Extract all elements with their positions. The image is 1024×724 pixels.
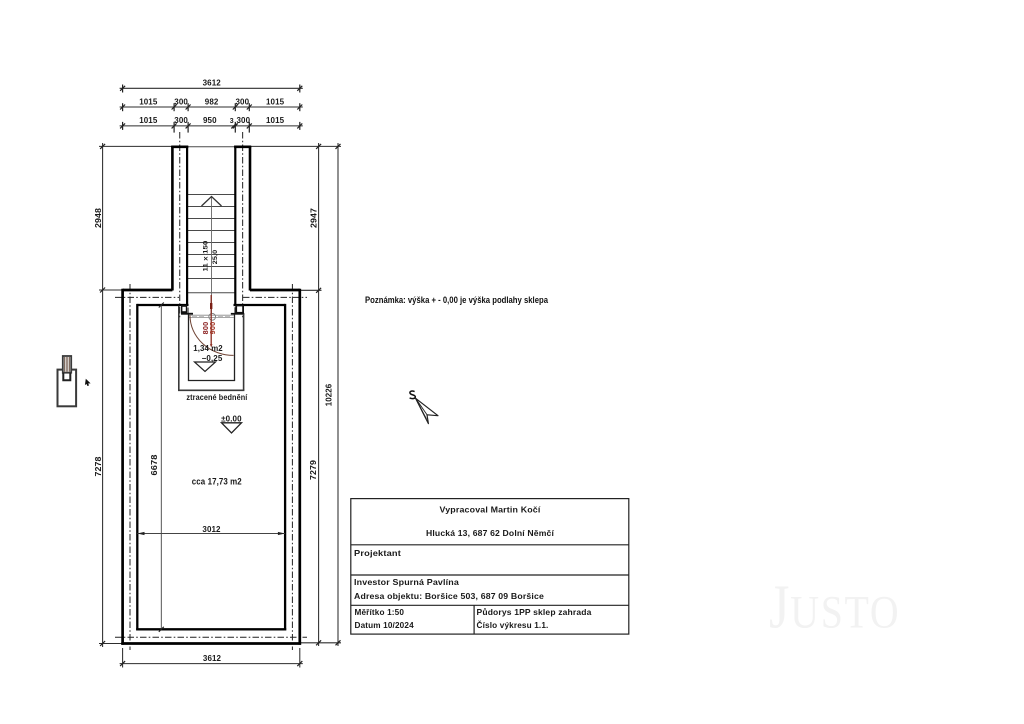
svg-text:Hlucká 13, 687 62 Dolní Němčí: Hlucká 13, 687 62 Dolní Němčí xyxy=(426,529,555,538)
svg-text:Měřítko 1:50: Měřítko 1:50 xyxy=(355,608,405,617)
svg-text:Datum 10/2024: Datum 10/2024 xyxy=(355,621,415,630)
svg-text:Adresa objektu: Boršice 503, 6: Adresa objektu: Boršice 503, 687 09 Borš… xyxy=(354,592,544,601)
svg-text:300: 300 xyxy=(174,116,188,125)
svg-text:ztracené bednění: ztracené bednění xyxy=(186,393,248,402)
svg-text:300: 300 xyxy=(235,97,249,106)
svg-text:300: 300 xyxy=(174,97,188,106)
svg-text:11 x 150: 11 x 150 xyxy=(203,240,210,271)
svg-text:3012: 3012 xyxy=(202,525,221,534)
svg-text:7279: 7279 xyxy=(309,460,318,480)
svg-text:300: 300 xyxy=(236,116,250,125)
svg-text:3612: 3612 xyxy=(203,654,222,663)
svg-text:Půdorys 1PP sklep zahrada: Půdorys 1PP sklep zahrada xyxy=(477,607,592,617)
svg-text:10226: 10226 xyxy=(325,383,334,406)
svg-text:1,34 m2: 1,34 m2 xyxy=(193,344,223,353)
svg-text:982: 982 xyxy=(205,97,219,106)
svg-text:1015: 1015 xyxy=(139,97,158,106)
svg-text:Investor Spurná Pavlína: Investor Spurná Pavlína xyxy=(354,578,459,587)
svg-text:950: 950 xyxy=(203,116,217,125)
svg-text:cca 17,73 m2: cca 17,73 m2 xyxy=(192,476,242,486)
svg-text:1015: 1015 xyxy=(266,97,285,106)
svg-text:1015: 1015 xyxy=(139,116,158,125)
svg-text:1015: 1015 xyxy=(266,116,285,125)
svg-text:900: 900 xyxy=(208,322,217,335)
svg-text:7278: 7278 xyxy=(94,456,103,476)
svg-text:Projektant: Projektant xyxy=(354,549,401,558)
svg-text:3612: 3612 xyxy=(203,79,222,88)
svg-text:±0.00: ±0.00 xyxy=(221,414,242,423)
svg-text:Číslo výkresu 1.1.: Číslo výkresu 1.1. xyxy=(477,619,549,630)
svg-text:6678: 6678 xyxy=(150,454,159,476)
svg-text:Vypracoval Martin Kočí: Vypracoval Martin Kočí xyxy=(440,506,542,515)
svg-text:2947: 2947 xyxy=(309,208,318,228)
svg-text:2948: 2948 xyxy=(94,208,103,228)
svg-text:25,0: 25,0 xyxy=(212,250,219,265)
svg-text:3: 3 xyxy=(230,118,234,125)
svg-text:Poznámka: výška + - 0,00 je vý: Poznámka: výška + - 0,00 je výška podlah… xyxy=(365,295,549,305)
